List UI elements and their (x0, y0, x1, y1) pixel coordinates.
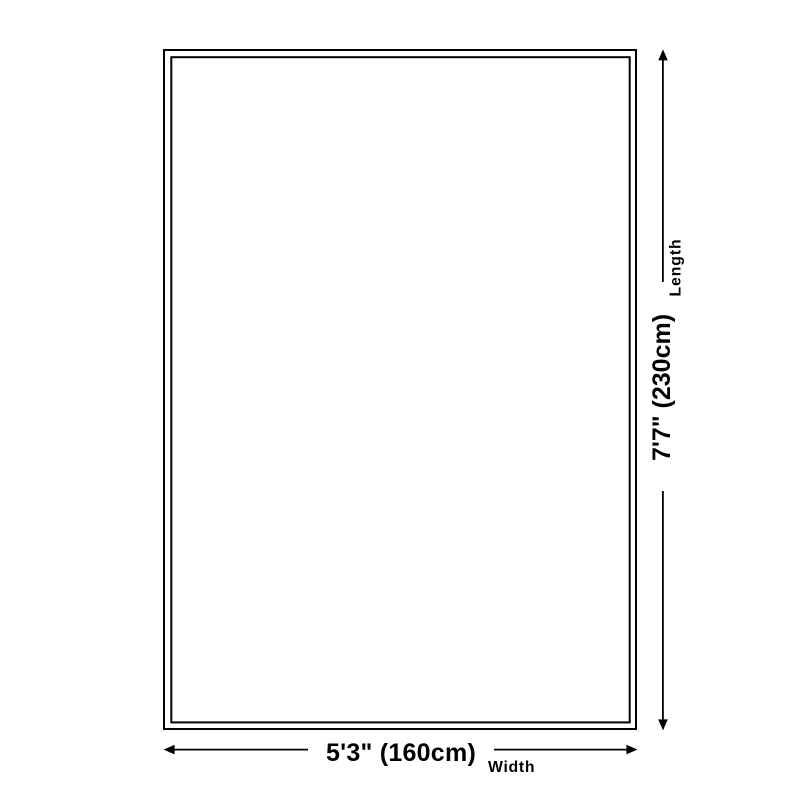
svg-text:7'7" (230cm): 7'7" (230cm) (648, 314, 676, 461)
svg-text:5'3" (160cm): 5'3" (160cm) (326, 739, 476, 767)
svg-text:Length: Length (668, 238, 685, 296)
svg-text:Width: Width (488, 759, 535, 776)
